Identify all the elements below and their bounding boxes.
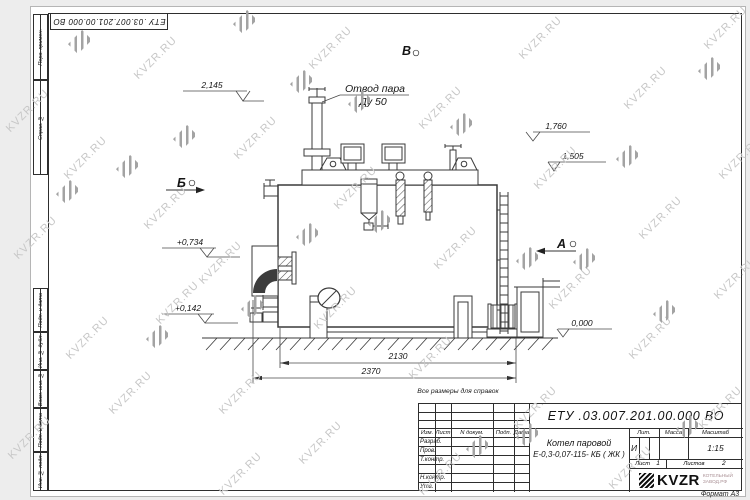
mass-header: Масса [659,428,688,437]
doc-name-line1: Котел паровой [547,438,612,448]
sheet-value: 1 [656,460,660,467]
inverted-designation-stamp: ЕТУ .03.007.201.00.000 ВО [50,13,168,30]
doc-name-cell: Котел паровой Е-0,3-0,07-115- КБ ( ЖК ) [529,430,629,466]
title-block: ЕТУ .03.007.201.00.000 ВО Изм. Лист N до… [418,403,742,491]
row-razrab: Разраб. [420,437,451,446]
side-cell-podp-data-1: Подп. и дата [33,288,48,332]
col-list: Лист [435,428,451,437]
kvzr-logo-icon [639,473,654,488]
designation-cell: ЕТУ .03.007.201.00.000 ВО [529,404,743,428]
kvzr-logo-subtext: КОТЕЛЬНЫЙ ЗАВОД.РФ [703,474,733,486]
sheets-value: 2 [722,460,726,467]
scale-header: Масштаб [688,428,743,437]
side-cell-perv-primen: Перв. примен. [33,14,48,80]
col-izm: Изм. [419,428,435,437]
side-cell-podp-data-2: Подп. и дата [33,408,48,452]
sheets-label: Листов [683,461,704,467]
format-note: Формат А3 [694,491,746,498]
lit-value: И [629,437,639,459]
row-prov: Пров. [420,446,451,455]
row-utv: Утв. [420,482,451,492]
row-tkontr: Т.контр. [420,455,451,464]
col-podp: Подп. [493,428,514,437]
col-data: Дата [514,428,529,437]
side-cell-inv-dubl: Инв. № дубл. [33,332,48,370]
inverted-designation-text: ЕТУ .03.007.201.00.000 ВО [53,17,166,26]
doc-name-line2: Е-0,3-0,07-115- КБ ( ЖК ) [533,450,625,459]
scale-value: 1:15 [688,437,743,459]
sheet-label: Лист [635,461,650,467]
side-cell-inv-podl: Инв. № подл. [33,452,48,491]
kvzr-logo-text: KVZR [657,472,700,489]
lit-header: Лит. [629,428,659,437]
side-cell-sprav: Справ. № [33,80,48,175]
sheets-cell: Листов 2 [666,459,743,468]
logo-cell: KVZR КОТЕЛЬНЫЙ ЗАВОД.РФ [629,468,743,492]
sheet-cell: Лист 1 [629,459,666,468]
row-nkontr: Н.контр. [420,473,451,482]
reference-note: Все размеры для справок [408,388,508,395]
col-ndocum: N докум. [451,428,493,437]
side-cell-vzam-inv: Взам. инв. № [33,370,48,408]
